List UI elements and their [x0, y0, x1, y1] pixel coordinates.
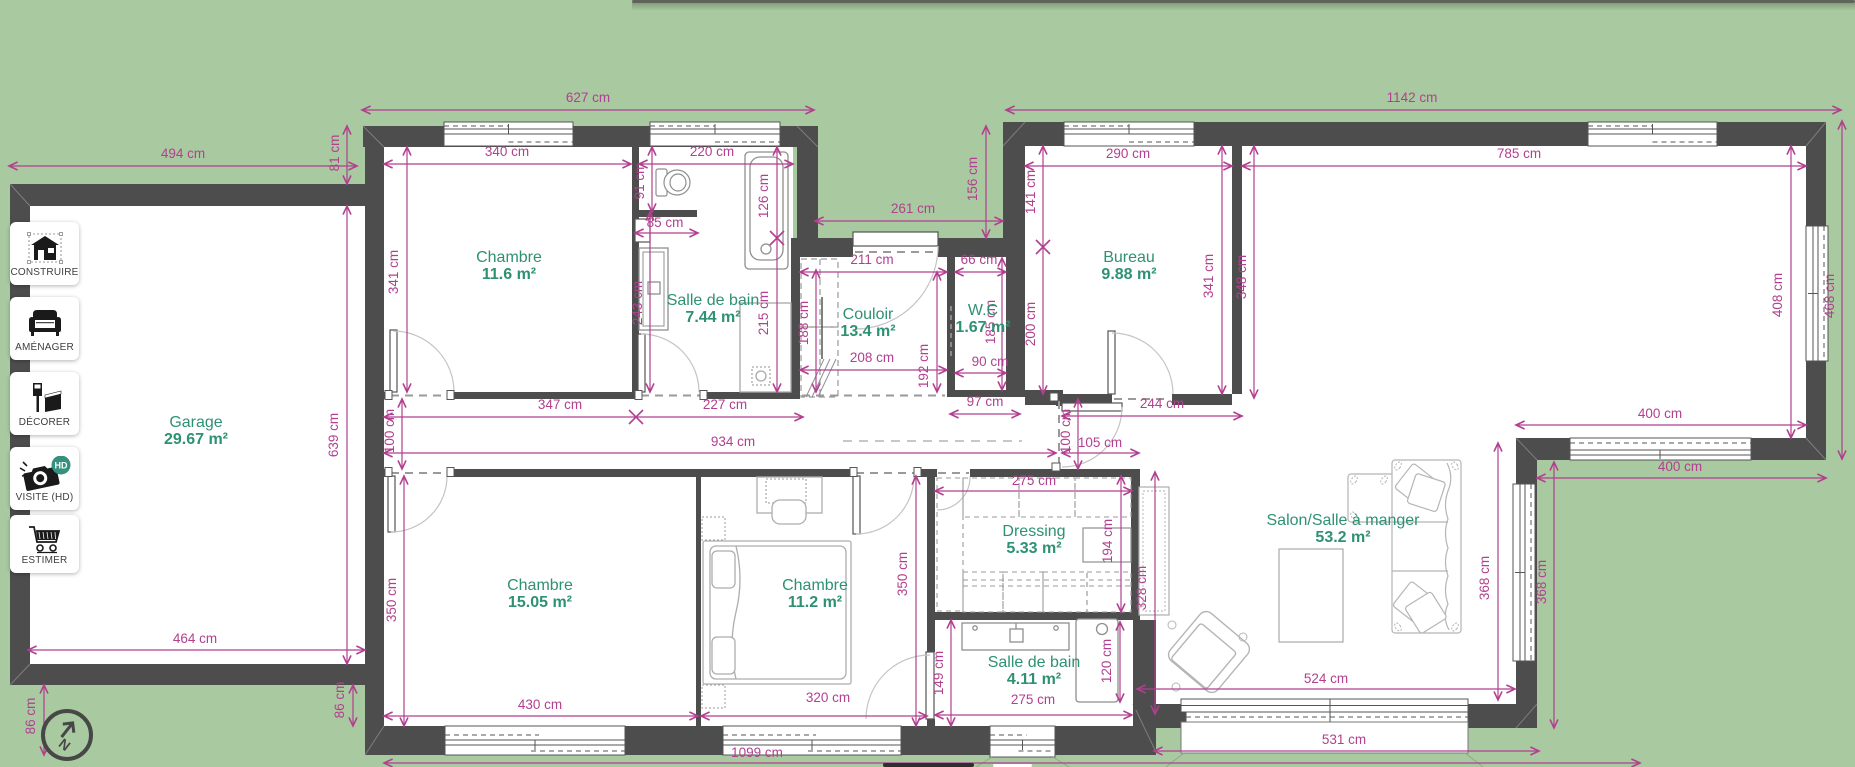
svg-text:Dressing: Dressing: [1002, 523, 1065, 540]
svg-text:430 cm: 430 cm: [518, 697, 562, 712]
svg-text:494 cm: 494 cm: [161, 146, 205, 161]
svg-text:81 cm: 81 cm: [327, 135, 342, 172]
svg-text:408 cm: 408 cm: [1770, 273, 1785, 317]
svg-text:Chambre: Chambre: [782, 577, 848, 594]
svg-text:350 cm: 350 cm: [384, 578, 399, 622]
svg-text:86 cm: 86 cm: [332, 682, 347, 719]
svg-text:90 cm: 90 cm: [972, 354, 1009, 369]
svg-text:66 cm: 66 cm: [961, 252, 998, 267]
svg-text:Salle de bain: Salle de bain: [667, 292, 760, 309]
svg-text:627 cm: 627 cm: [566, 90, 610, 105]
svg-text:208 cm: 208 cm: [850, 350, 894, 365]
svg-text:220 cm: 220 cm: [690, 144, 734, 159]
svg-text:261 cm: 261 cm: [891, 201, 935, 216]
svg-text:275 cm: 275 cm: [1011, 692, 1055, 707]
svg-text:1142 cm: 1142 cm: [1387, 90, 1438, 105]
svg-text:91 cm: 91 cm: [632, 163, 647, 200]
svg-text:149 cm: 149 cm: [931, 651, 946, 695]
svg-text:29.67 m²: 29.67 m²: [164, 431, 228, 448]
svg-text:328 cm: 328 cm: [1134, 566, 1149, 610]
svg-text:11.6 m²: 11.6 m²: [482, 266, 536, 283]
svg-text:639 cm: 639 cm: [326, 413, 341, 457]
svg-text:Chambre: Chambre: [507, 577, 573, 594]
svg-text:W.C: W.C: [968, 302, 998, 319]
svg-text:348 cm: 348 cm: [1234, 255, 1249, 299]
svg-text:5.33 m²: 5.33 m²: [1006, 540, 1061, 557]
svg-text:243 cm: 243 cm: [630, 281, 645, 325]
svg-text:524 cm: 524 cm: [1304, 671, 1348, 686]
svg-text:HD: HD: [54, 461, 67, 471]
svg-text:244 cm: 244 cm: [1140, 396, 1184, 411]
svg-text:Salle de bain: Salle de bain: [988, 654, 1081, 671]
svg-text:290 cm: 290 cm: [1106, 146, 1150, 161]
svg-text:227 cm: 227 cm: [703, 397, 747, 412]
svg-text:785 cm: 785 cm: [1497, 146, 1541, 161]
svg-text:468 cm: 468 cm: [1822, 274, 1837, 318]
svg-text:368 cm: 368 cm: [1477, 556, 1492, 600]
svg-text:Chambre: Chambre: [476, 249, 542, 266]
svg-text:53.2 m²: 53.2 m²: [1315, 529, 1370, 546]
svg-text:4.11 m²: 4.11 m²: [1007, 671, 1061, 688]
svg-text:100 cm: 100 cm: [1058, 409, 1073, 453]
svg-text:192 cm: 192 cm: [916, 344, 931, 388]
svg-text:13.4 m²: 13.4 m²: [840, 323, 895, 340]
svg-text:188 cm: 188 cm: [796, 301, 811, 345]
svg-text:341 cm: 341 cm: [1201, 254, 1216, 298]
svg-text:9.88 m²: 9.88 m²: [1101, 266, 1156, 283]
svg-text:400 cm: 400 cm: [1658, 459, 1702, 474]
svg-text:320 cm: 320 cm: [806, 690, 850, 705]
svg-text:141 cm: 141 cm: [1023, 170, 1038, 214]
svg-text:97 cm: 97 cm: [967, 394, 1004, 409]
svg-text:126 cm: 126 cm: [756, 174, 771, 218]
svg-text:194 cm: 194 cm: [1100, 519, 1115, 563]
svg-text:Garage: Garage: [169, 414, 222, 431]
svg-text:156 cm: 156 cm: [965, 157, 980, 201]
svg-text:934 cm: 934 cm: [711, 434, 755, 449]
svg-text:211 cm: 211 cm: [850, 252, 893, 267]
svg-text:1099 cm: 1099 cm: [731, 745, 783, 760]
svg-text:275 cm: 275 cm: [1012, 473, 1056, 488]
svg-text:120 cm: 120 cm: [1099, 639, 1114, 683]
svg-text:105 cm: 105 cm: [1078, 435, 1122, 450]
svg-text:7.44 m²: 7.44 m²: [685, 309, 740, 326]
svg-text:531 cm: 531 cm: [1322, 732, 1366, 747]
svg-text:86 cm: 86 cm: [23, 698, 38, 735]
svg-text:15.05 m²: 15.05 m²: [508, 594, 572, 611]
svg-text:464 cm: 464 cm: [173, 631, 217, 646]
svg-text:341 cm: 341 cm: [386, 250, 401, 294]
svg-text:100 cm: 100 cm: [382, 409, 397, 453]
svg-text:Salon/Salle à manger: Salon/Salle à manger: [1267, 512, 1421, 529]
svg-text:400 cm: 400 cm: [1638, 406, 1682, 421]
svg-text:340 cm: 340 cm: [485, 144, 529, 159]
svg-text:1.67 m²: 1.67 m²: [955, 319, 1010, 336]
svg-text:350 cm: 350 cm: [895, 552, 910, 596]
svg-text:11.2 m²: 11.2 m²: [788, 594, 842, 611]
svg-text:Couloir: Couloir: [843, 306, 894, 323]
svg-text:368 cm: 368 cm: [1534, 560, 1549, 604]
svg-text:347 cm: 347 cm: [538, 397, 582, 412]
svg-text:200 cm: 200 cm: [1023, 302, 1038, 346]
svg-text:Bureau: Bureau: [1103, 249, 1155, 266]
